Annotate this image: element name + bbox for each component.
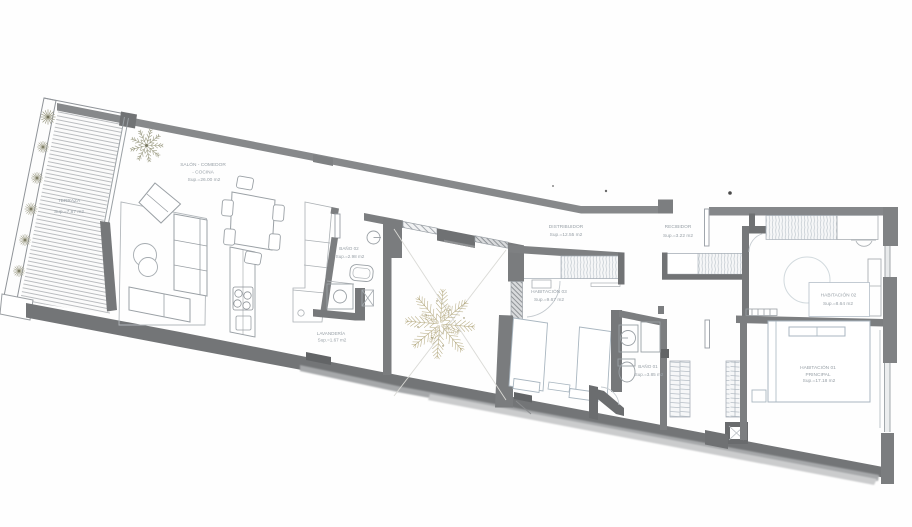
svg-text:Sup.=7.87 m2: Sup.=7.87 m2	[54, 209, 84, 215]
svg-text:Sup.=12.55 m2: Sup.=12.55 m2	[550, 232, 583, 238]
svg-text:Sup.=1.67 m2: Sup.=1.67 m2	[318, 338, 347, 343]
svg-text:HABITACIÓN 02: HABITACIÓN 02	[821, 292, 857, 299]
svg-text:Sup.=8.64 m2: Sup.=8.64 m2	[823, 301, 853, 307]
svg-text:PRINCIPAL: PRINCIPAL	[806, 372, 831, 378]
svg-text:DISTRIBUIDOR: DISTRIBUIDOR	[549, 224, 584, 230]
svg-text:RECIBIDOR: RECIBIDOR	[665, 224, 692, 230]
svg-text:BAÑO 02: BAÑO 02	[339, 245, 359, 251]
svg-text:- COCINA: - COCINA	[192, 170, 214, 176]
svg-text:SALÓN - COMEDOR: SALÓN - COMEDOR	[180, 161, 226, 168]
svg-text:Sup.=3.85 m2: Sup.=3.85 m2	[635, 372, 664, 377]
svg-text:HABITACIÓN 01: HABITACIÓN 01	[800, 364, 836, 371]
svg-text:Sup.=9.67 m2: Sup.=9.67 m2	[534, 297, 564, 303]
svg-text:Sup.=2.98 m2: Sup.=2.98 m2	[336, 254, 365, 259]
svg-text:Sup.=26.00 m2: Sup.=26.00 m2	[188, 177, 221, 183]
svg-text:LAVANDERÍA: LAVANDERÍA	[317, 330, 346, 336]
svg-text:TERRAZA: TERRAZA	[58, 198, 81, 204]
svg-text:HABITACIÓN 03: HABITACIÓN 03	[531, 288, 567, 295]
svg-text:BAÑO 01: BAÑO 01	[638, 363, 658, 369]
svg-text:Sup.=17.18 m2: Sup.=17.18 m2	[803, 378, 836, 384]
svg-text:Sup.=3.22 m2: Sup.=3.22 m2	[663, 233, 693, 239]
